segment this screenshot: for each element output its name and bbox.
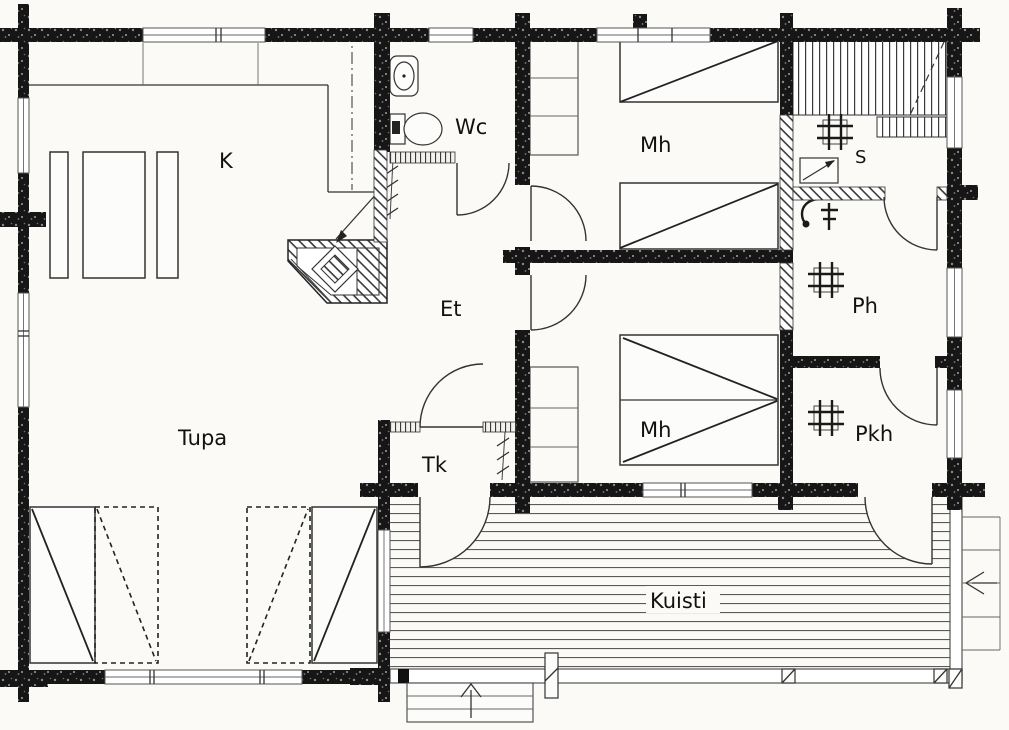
window xyxy=(105,670,302,684)
kitchen-unit xyxy=(50,152,68,278)
window xyxy=(947,77,962,148)
porch-post xyxy=(782,669,795,683)
window xyxy=(947,268,962,337)
room-label-bedroom-middle: Mh xyxy=(640,418,671,442)
double-bed xyxy=(620,335,778,465)
room-label-kitchen: K xyxy=(219,149,234,173)
porch-right-edge xyxy=(950,497,962,683)
porch-post xyxy=(949,669,962,688)
sauna-benches-lower xyxy=(877,117,947,137)
porch-post xyxy=(934,669,947,683)
window xyxy=(429,28,473,42)
room-label-living: Tupa xyxy=(177,426,227,450)
porch-post xyxy=(545,653,558,698)
room-label-hallway: Et xyxy=(440,297,462,321)
single-bed xyxy=(620,40,778,102)
toilet xyxy=(390,113,442,145)
room-label-dressing: Pkh xyxy=(855,422,893,446)
room-label-toilet: Wc xyxy=(455,115,487,139)
sauna-ph-wall xyxy=(793,187,885,200)
sauna-west-wall xyxy=(780,28,793,115)
kitchen-table xyxy=(83,152,145,278)
room-label-bedroom-top: Mh xyxy=(640,133,671,157)
window xyxy=(643,483,752,497)
single-bed xyxy=(620,183,778,249)
washroom-partition xyxy=(780,263,793,330)
sink xyxy=(390,56,418,96)
wc-south-wall xyxy=(390,152,455,163)
ph-pkh-wall xyxy=(793,356,880,368)
tk-north-wall xyxy=(390,422,420,432)
room-label-vestibule: Tk xyxy=(421,453,448,477)
porch-front-edge xyxy=(390,669,962,683)
dressing-west-wall xyxy=(780,330,793,497)
sauna-stove xyxy=(800,158,838,183)
window xyxy=(947,390,962,458)
porch-post xyxy=(398,669,409,683)
kitchen-unit xyxy=(157,152,178,278)
room-label-washroom: Ph xyxy=(852,294,878,318)
window xyxy=(597,28,710,42)
floor-plan-svg: Kuisti K Tupa Et Tk xyxy=(0,0,1009,730)
fireplace-back-wall xyxy=(374,150,387,242)
sauna-benches-upper xyxy=(793,38,947,115)
room-label-sauna: S xyxy=(855,147,866,168)
room-label-porch: Kuisti xyxy=(650,589,707,613)
window xyxy=(143,28,265,42)
bedroom-divider-wall xyxy=(503,250,793,263)
sauna-partition xyxy=(780,115,793,250)
kitchen-wc-wall xyxy=(374,28,390,152)
window xyxy=(18,98,29,173)
window xyxy=(18,293,29,407)
window xyxy=(378,530,390,632)
front-steps xyxy=(407,683,533,722)
floor-plan-canvas: Kuisti K Tupa Et Tk xyxy=(0,0,1009,730)
